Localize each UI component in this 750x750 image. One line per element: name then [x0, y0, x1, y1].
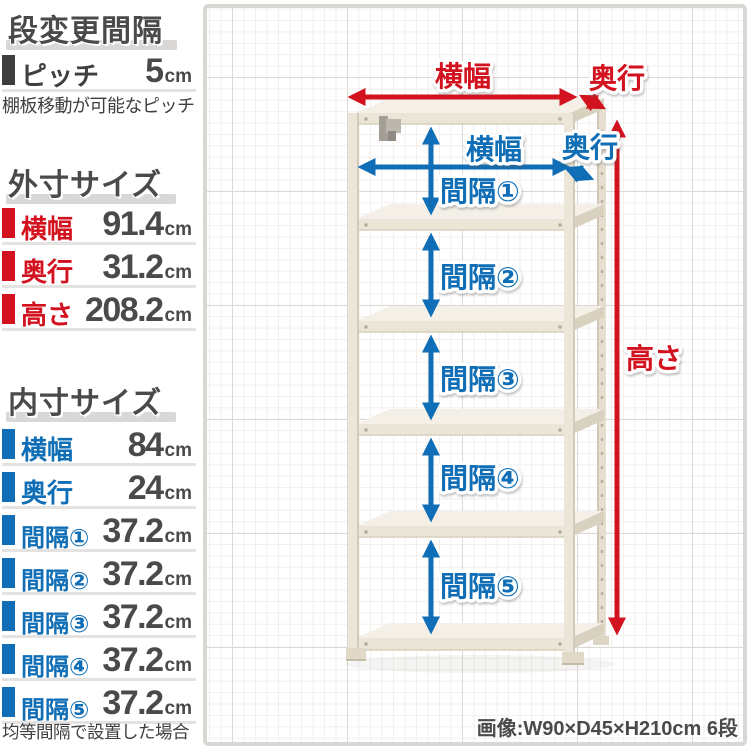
gap-5-value: 37.2 cm [102, 684, 192, 722]
gap-4-unit: cm [165, 655, 192, 677]
inner-width-number: 84 [128, 426, 163, 464]
pitch-marker [2, 55, 15, 85]
spec-row-gap-4: 間隔④ 37.2 cm [2, 641, 196, 681]
spec-row-outer-depth: 奥行 31.2 cm [2, 248, 196, 288]
gap-3-row-label: 間隔③ [21, 604, 89, 639]
gap-4-value: 37.2 cm [102, 641, 192, 679]
blue-marker [2, 472, 15, 502]
pitch-value: 5 cm [145, 52, 192, 90]
outer-depth-value: 31.2 cm [102, 248, 192, 286]
pitch-note: 棚板移動が可能なピッチ [2, 92, 202, 118]
pitch-label: ピッチ [21, 56, 99, 93]
inner-size-title: 内寸サイズ [8, 378, 162, 422]
gap-1-row-label: 間隔① [21, 518, 89, 553]
pitch-section-title: 段変更間隔 [8, 6, 163, 50]
spec-row-gap-3: 間隔③ 37.2 cm [2, 598, 196, 638]
inner-width-unit: cm [165, 440, 192, 462]
gap-2-value: 37.2 cm [102, 555, 192, 593]
outer-height-number: 208.2 [85, 291, 163, 329]
gap-3-number: 37.2 [102, 598, 162, 636]
red-marker [2, 251, 15, 281]
gap-2-unit: cm [165, 569, 192, 591]
gap-5-unit: cm [165, 698, 192, 720]
spec-row-gap-1: 間隔① 37.2 cm [2, 512, 196, 552]
outer-height-value: 208.2 cm [85, 291, 192, 329]
outer-width-value: 91.4 cm [102, 205, 192, 243]
blue-marker [2, 515, 15, 545]
outer-depth-unit: cm [165, 262, 192, 284]
spec-row-inner-width: 横幅 84 cm [2, 426, 196, 466]
spec-row-pitch: ピッチ 5 cm [2, 52, 196, 92]
gap-2-row-label: 間隔② [21, 561, 89, 596]
gap-1-value: 37.2 cm [102, 512, 192, 550]
gap-1-number: 37.2 [102, 512, 162, 550]
outer-depth-number: 31.2 [102, 248, 162, 286]
blue-marker [2, 601, 15, 631]
inner-width-label: 横幅 [21, 430, 73, 467]
gap-3-value: 37.2 cm [102, 598, 192, 636]
gap-2-number: 37.2 [102, 555, 162, 593]
inner-depth-unit: cm [165, 483, 192, 505]
blue-marker [2, 644, 15, 674]
spec-row-outer-width: 横幅 91.4 cm [2, 205, 196, 245]
spec-row-gap-2: 間隔② 37.2 cm [2, 555, 196, 595]
outer-width-number: 91.4 [102, 205, 162, 243]
inner-depth-number: 24 [128, 469, 163, 507]
inner-depth-label: 奥行 [21, 473, 73, 510]
gap-4-number: 37.2 [102, 641, 162, 679]
outer-size-title: 外寸サイズ [8, 160, 162, 204]
gap-3-unit: cm [165, 612, 192, 634]
gap-1-unit: cm [165, 526, 192, 548]
red-marker [2, 208, 15, 238]
blue-marker [2, 558, 15, 588]
gap-4-row-label: 間隔④ [21, 647, 89, 682]
dimension-diagram-panel [203, 4, 747, 746]
pitch-unit: cm [165, 66, 192, 88]
pitch-number: 5 [145, 52, 162, 90]
spec-sidebar: 段変更間隔 ピッチ 5 cm 棚板移動が可能なピッチ 外寸サイズ 横幅 91.4… [0, 0, 203, 750]
spec-row-gap-5: 間隔⑤ 37.2 cm [2, 684, 196, 724]
gap-5-number: 37.2 [102, 684, 162, 722]
inner-width-value: 84 cm [128, 426, 192, 464]
inner-size-note: 均等間隔で設置した場合 [2, 719, 202, 744]
blue-marker [2, 429, 15, 459]
spec-row-inner-depth: 奥行 24 cm [2, 469, 196, 509]
inner-depth-value: 24 cm [128, 469, 192, 507]
blue-marker [2, 687, 15, 717]
outer-depth-label: 奥行 [21, 252, 73, 289]
spec-row-outer-height: 高さ 208.2 cm [2, 291, 196, 331]
outer-height-label: 高さ [21, 295, 73, 332]
outer-width-label: 横幅 [21, 209, 73, 246]
outer-width-unit: cm [165, 219, 192, 241]
outer-height-unit: cm [165, 305, 192, 327]
red-marker [2, 294, 15, 324]
